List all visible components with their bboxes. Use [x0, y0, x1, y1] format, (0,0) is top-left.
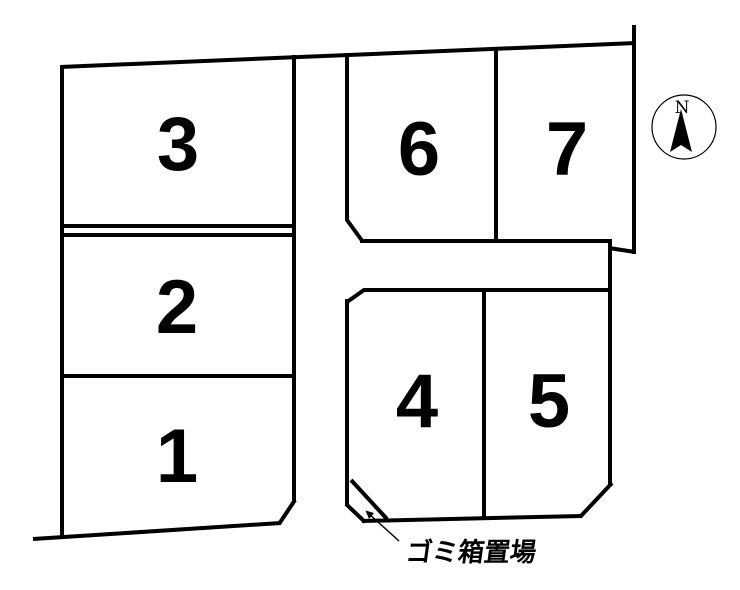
boundary-lines	[33, 25, 636, 539]
bottom-boundary-line	[33, 523, 281, 539]
lot6-west-edge-chamfer	[347, 53, 363, 242]
lot-6-number: 6	[398, 107, 440, 192]
lot-5-number: 5	[528, 359, 570, 444]
lot1-southeast-chamfer	[279, 500, 295, 524]
lot-map-drawing: ゴミ箱置場 N 1 2 3 4 5 6 7	[0, 0, 740, 590]
site-plan: ゴミ箱置場 N 1 2 3 4 5 6 7	[0, 0, 740, 590]
right-boundary-jog	[609, 248, 635, 252]
lot-3-number: 3	[157, 102, 199, 187]
lot5-southeast-chamfer	[580, 483, 612, 517]
garbage-area-label: ゴミ箱置場	[404, 537, 538, 567]
lot4-lot5-south-edge	[362, 516, 582, 521]
lot-7-number: 7	[546, 107, 588, 192]
lot4-lot5-north-edge-chamfer	[347, 290, 612, 302]
lot-2-number: 2	[156, 265, 198, 350]
lot-numbers: 1 2 3 4 5 6 7	[156, 102, 588, 499]
lot-1-number: 1	[156, 414, 198, 499]
compass: N	[652, 95, 716, 159]
lot-4-number: 4	[396, 359, 438, 444]
